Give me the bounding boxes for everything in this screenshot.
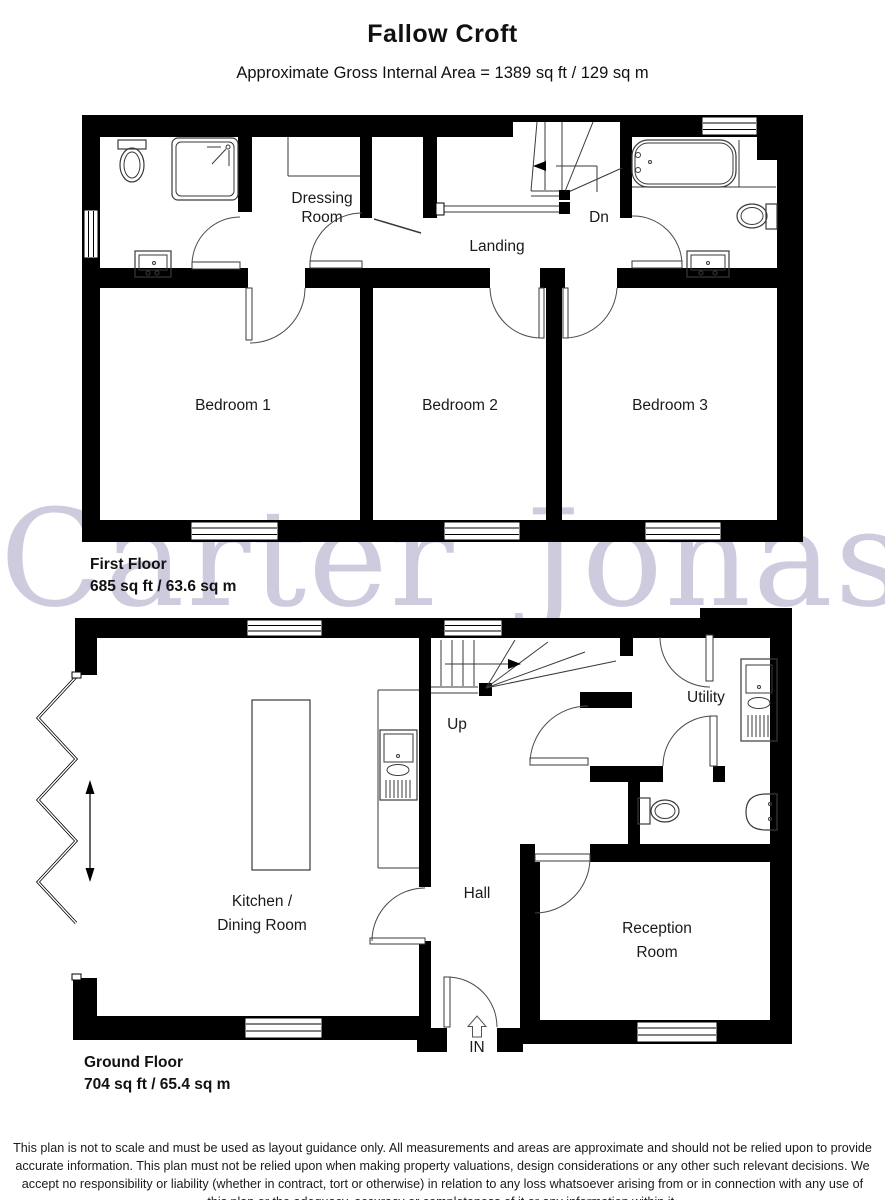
staircase-up (431, 640, 616, 696)
kitchen-sink-icon (380, 730, 417, 800)
plan-canvas: Dressing Room Landing Dn Bedroom 1 Bedro… (0, 0, 885, 1200)
label-landing: Landing (469, 238, 524, 255)
kitchen-top-window (247, 620, 322, 636)
dressing-room-alcove (288, 137, 360, 176)
label-dressing-room-line1: Dressing (291, 190, 352, 207)
first-floor-name: First Floor (90, 554, 236, 576)
label-dressing-room-line2: Room (301, 209, 342, 226)
label-kitchen-line1: Kitchen / (232, 893, 293, 910)
bedroom-3-window (645, 522, 721, 540)
hall-inner-door (530, 706, 588, 765)
label-bedroom-1: Bedroom 1 (195, 397, 271, 414)
bath-icon (632, 140, 776, 187)
kitchen-bottom-window (245, 1018, 322, 1038)
first-floor-area: 685 sq ft / 63.6 sq m (90, 576, 236, 598)
closet-door-ajar (374, 219, 421, 233)
label-utility: Utility (687, 689, 725, 706)
bedroom-2-window (444, 522, 520, 540)
bathroom-window (702, 117, 757, 135)
floor-plan-page: Fallow Croft Approximate Gross Internal … (0, 0, 885, 1200)
ground-floor-area: 704 sq ft / 65.4 sq m (84, 1074, 230, 1096)
bedroom-1-window (191, 522, 278, 540)
label-reception-line2: Room (636, 944, 677, 961)
label-bedroom-3: Bedroom 3 (632, 397, 708, 414)
reception-window (637, 1022, 717, 1042)
label-bedroom-2: Bedroom 2 (422, 397, 498, 414)
ensuite-window (84, 210, 98, 258)
first-floor-plan: Dressing Room Landing Dn Bedroom 1 Bedro… (82, 115, 803, 542)
utility-wc-door (663, 716, 717, 766)
bathroom-toilet-icon (737, 204, 777, 229)
reception-door (535, 854, 590, 913)
bedroom-3-door (563, 288, 617, 338)
entrance-arrow-icon (468, 1016, 486, 1037)
ground-floor-plan: Kitchen / Dining Room Hall Utility Recep… (38, 608, 792, 1056)
bathroom-door (632, 216, 682, 268)
ground-floor-label: Ground Floor 704 sq ft / 65.4 sq m (84, 1052, 230, 1097)
ensuite-toilet-icon (118, 140, 146, 182)
label-stairs-up: Up (447, 716, 467, 733)
label-kitchen-line2: Dining Room (217, 917, 307, 934)
label-reception-line1: Reception (622, 920, 692, 937)
bedroom-2-door (490, 288, 544, 338)
wc-toilet-icon (638, 798, 679, 824)
utility-door (660, 635, 713, 687)
disclaimer-text: This plan is not to scale and must be us… (12, 1139, 873, 1200)
kitchen-island (252, 700, 310, 870)
opening-direction-arrow (86, 780, 95, 882)
front-door (444, 977, 497, 1027)
kitchen-counter (378, 690, 419, 868)
first-floor-walls (82, 115, 803, 542)
ensuite-door (192, 217, 240, 269)
shower-icon (172, 138, 238, 200)
kitchen-door (370, 888, 425, 944)
ground-floor-walls (73, 608, 792, 1052)
label-entrance-in: IN (469, 1039, 485, 1056)
bifold-doors (38, 672, 81, 980)
ground-floor-name: Ground Floor (84, 1052, 230, 1074)
stairs-down-arrow (533, 161, 546, 171)
label-stairs-down: Dn (589, 209, 609, 226)
stair-top-window (444, 620, 502, 636)
bedroom-1-door (246, 288, 305, 343)
stairs-up-arrow (508, 659, 521, 669)
first-floor-label: First Floor 685 sq ft / 63.6 sq m (90, 554, 236, 599)
label-hall: Hall (464, 885, 491, 902)
